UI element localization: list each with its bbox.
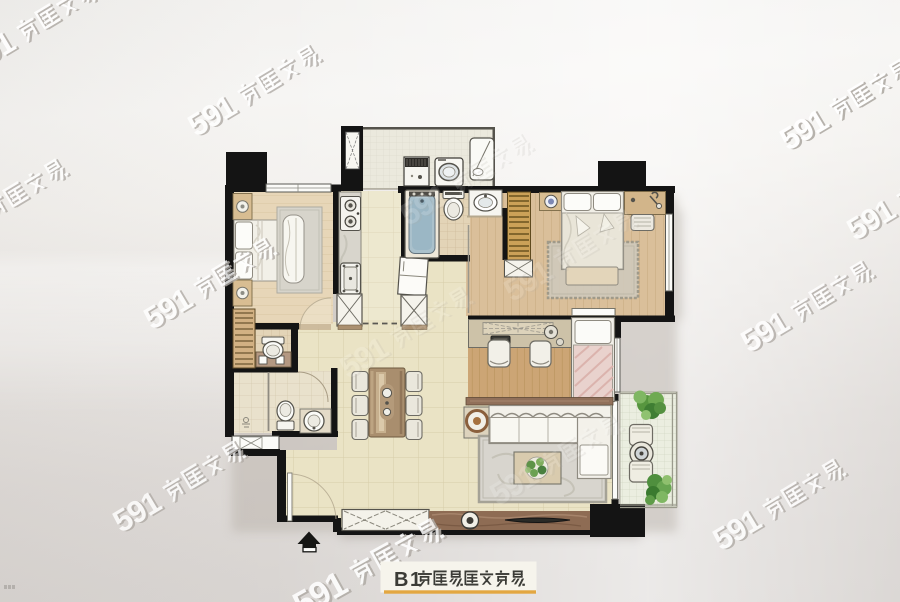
svg-text:1: 1 [410, 569, 421, 591]
svg-text:B: B [394, 569, 408, 591]
